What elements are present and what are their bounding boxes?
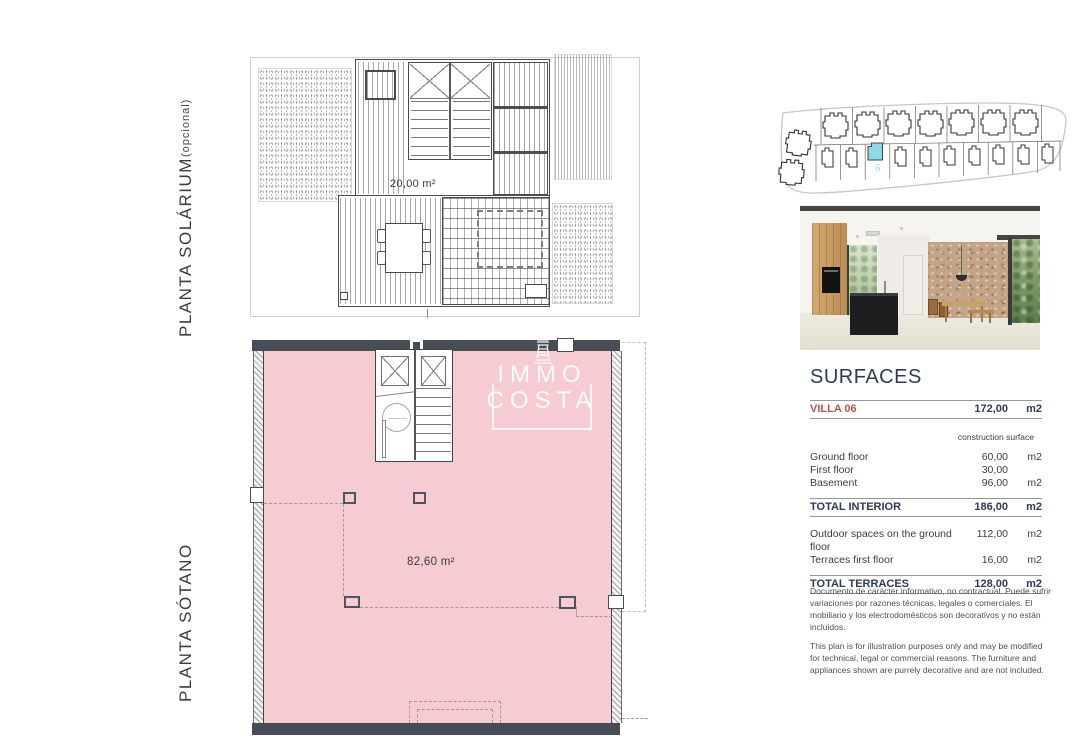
site-villa6-highlight xyxy=(868,143,883,160)
table-row: Ground floor 60,00 m2 xyxy=(810,451,1042,464)
stair-skylight-right xyxy=(421,356,446,386)
column xyxy=(344,596,360,608)
surfaces-title: SURFACES xyxy=(810,366,1042,389)
total-label: TOTAL INTERIOR xyxy=(810,501,956,514)
basement-wall-left xyxy=(253,351,264,723)
photo-spotlight xyxy=(856,235,859,238)
villa-name: VILLA 06 xyxy=(810,403,956,416)
neighbor-roof-hatch xyxy=(554,54,612,180)
surfaces-section: SURFACES VILLA 06 172,00 m2 construction… xyxy=(810,366,1042,594)
pergola-corner-notch xyxy=(525,284,547,298)
pergola-beam xyxy=(494,106,547,109)
upper-floor-projection-dashed xyxy=(622,342,646,612)
watermark-text: IMMO COSTA xyxy=(480,362,604,414)
row-unit: m2 xyxy=(1008,451,1042,464)
stair-skylight-left xyxy=(410,64,449,99)
pergola-beam xyxy=(494,151,547,154)
photo-window-mullion xyxy=(1008,237,1012,325)
brochure-page: PLANTA SOLÁRIUM (opcional) PLANTA SÓTANO xyxy=(0,0,1080,750)
disclaimer-english: This plan is for illustration purposes o… xyxy=(810,640,1052,676)
villa-row: VILLA 06 172,00 m2 xyxy=(810,401,1042,418)
photo-bench-leg xyxy=(989,313,991,323)
gravel-area-right xyxy=(552,203,613,304)
table-row: Outdoor spaces on the ground floor 112,0… xyxy=(810,528,1042,554)
table-row: Basement 96,00 m2 xyxy=(810,477,1042,490)
solarium-floor-label-text: PLANTA SOLÁRIUM xyxy=(176,157,196,337)
watermark-line2: COSTA xyxy=(480,388,604,414)
photo-oven xyxy=(822,267,840,293)
row-value: 96,00 xyxy=(956,477,1008,490)
site-villa6-number: 6 xyxy=(875,163,881,174)
rule xyxy=(810,418,1042,419)
chair-plan xyxy=(422,229,431,243)
dashed-line xyxy=(576,616,612,617)
row-unit: m2 xyxy=(1008,477,1042,490)
site-houses-bottom-row xyxy=(822,144,1053,167)
dashed-line xyxy=(622,718,648,719)
chair-plan xyxy=(422,251,431,265)
solarium-floor-label-suffix: (opcional) xyxy=(180,98,192,156)
stair-divider xyxy=(449,63,451,159)
site-villas-top-row xyxy=(823,110,1038,138)
disclaimer-spanish: Documento de carácter informativo, no co… xyxy=(810,585,1052,633)
basement-stairwell xyxy=(375,349,453,462)
dashed-line xyxy=(360,607,559,608)
photo-ceiling-beam xyxy=(800,206,1040,211)
total-interior-row: TOTAL INTERIOR 186,00 m2 xyxy=(810,499,1042,516)
interior-photo xyxy=(800,205,1040,350)
photo-table-leg xyxy=(981,306,983,322)
total-unit: m2 xyxy=(1008,501,1042,514)
row-unit: m2 xyxy=(1008,554,1042,567)
dashed-line xyxy=(343,504,344,596)
disclaimer-block: Documento de carácter informativo, no co… xyxy=(810,585,1052,676)
wall-anchor-left xyxy=(250,487,264,503)
row-value: 30,00 xyxy=(956,464,1008,477)
photo-table-leg xyxy=(945,306,947,322)
basement-area-label: 82,60 m² xyxy=(407,556,455,568)
photo-door xyxy=(903,255,923,315)
solarium-stairwell xyxy=(408,62,492,160)
floor-rows: Ground floor 60,00 m2 First floor 30,00 … xyxy=(810,451,1042,490)
stair-skylight-left xyxy=(381,356,409,386)
row-value: 112,00 xyxy=(956,528,1008,541)
solarium-plan: 20,00 m² xyxy=(240,40,650,330)
stair-treads xyxy=(416,388,451,460)
dashed-line xyxy=(264,503,343,504)
stair-circle-feature xyxy=(382,403,411,432)
row-label: Basement xyxy=(810,477,956,490)
photo-chair xyxy=(928,299,938,315)
basement-floor-label-text: PLANTA SÓTANO xyxy=(176,543,196,702)
villa-total-value: 172,00 xyxy=(956,403,1008,416)
column xyxy=(559,596,576,609)
stair-treads-left xyxy=(411,101,448,159)
immocosta-watermark: IMMO COSTA xyxy=(478,330,608,438)
pergola-opening-dashed xyxy=(477,210,543,268)
site-villas-left xyxy=(778,129,812,186)
dining-set-plan xyxy=(377,223,431,273)
site-row-line xyxy=(814,141,1062,145)
photo-bench-leg xyxy=(970,313,972,323)
row-label: First floor xyxy=(810,464,956,477)
villa-total-unit: m2 xyxy=(1008,403,1042,416)
solarium-area-label: 20,00 m² xyxy=(390,178,436,190)
rule xyxy=(810,516,1042,517)
row-value: 60,00 xyxy=(956,451,1008,464)
dimension-tick xyxy=(427,309,428,318)
photo-garden-view xyxy=(1012,239,1040,323)
stair-treads-right xyxy=(453,101,490,159)
column xyxy=(343,492,356,504)
wall-slot-mark xyxy=(413,342,420,349)
row-label: Ground floor xyxy=(810,451,956,464)
row-value: 16,00 xyxy=(956,554,1008,567)
basement-wall-right xyxy=(611,351,622,723)
basement-wall-bottom xyxy=(252,723,620,735)
pergola-grid-lower xyxy=(442,197,550,305)
gravel-area-left xyxy=(258,68,352,202)
site-plan: 6 xyxy=(776,97,1068,199)
circle-dash xyxy=(388,418,407,419)
table-row: First floor 30,00 xyxy=(810,464,1042,477)
stair-handrail xyxy=(382,420,386,458)
pergola-slats-upper xyxy=(493,62,548,195)
table-plan xyxy=(385,223,423,273)
row-unit: m2 xyxy=(1008,528,1042,541)
photo-floor xyxy=(800,313,1040,350)
stair-slope-line xyxy=(376,391,415,397)
terrace-corner-notch xyxy=(340,292,348,300)
basement-floor-label: PLANTA SÓTANO xyxy=(168,520,204,725)
pergola-projection-inner xyxy=(417,709,493,723)
photo-faucet xyxy=(884,281,886,293)
solarium-floor-label: PLANTA SOLÁRIUM (opcional) xyxy=(168,80,204,355)
row-label: Outdoor spaces on the ground floor xyxy=(810,528,956,554)
construction-surface-header: construction surface xyxy=(810,432,1042,442)
jacuzzi-box xyxy=(365,70,396,100)
photo-pendant-cord xyxy=(961,245,962,276)
stair-skylight-right xyxy=(451,64,490,99)
photo-spotlight xyxy=(900,227,903,230)
total-value: 186,00 xyxy=(956,501,1008,514)
watermark-line1: IMMO xyxy=(480,362,604,388)
photo-kitchen-island xyxy=(850,293,898,335)
photo-oven-handle xyxy=(824,270,838,272)
outdoor-rows: Outdoor spaces on the ground floor 112,0… xyxy=(810,528,1042,567)
row-label: Terraces first floor xyxy=(810,554,956,567)
column xyxy=(413,492,426,504)
table-row: Terraces first floor 16,00 m2 xyxy=(810,554,1042,567)
photo-table-top xyxy=(942,301,986,306)
